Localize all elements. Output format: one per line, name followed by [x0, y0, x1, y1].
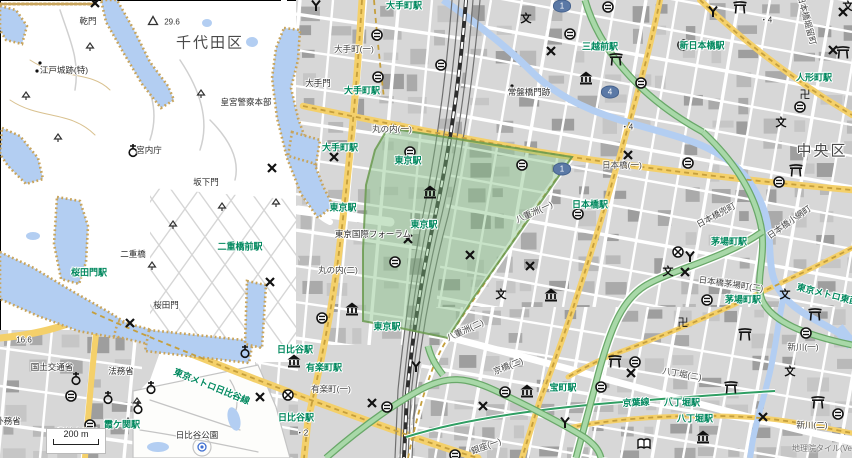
- school-icon: [496, 287, 508, 301]
- subway-station-icon: [678, 40, 688, 50]
- tree-icon: [149, 262, 156, 270]
- site-dot-icon: [510, 84, 513, 87]
- school-icon: [780, 287, 792, 301]
- site-dot-icon: [35, 69, 38, 72]
- subway-station-icon: [630, 357, 640, 367]
- library-icon: [638, 439, 650, 448]
- police-station-icon: [283, 390, 293, 400]
- subway-station-icon: [683, 158, 693, 168]
- government-icon: [129, 144, 137, 156]
- subway-station-icon: [795, 102, 805, 112]
- subway-station-icon: [373, 72, 383, 82]
- subway-station-icon: [801, 328, 811, 338]
- subway-station-icon: [450, 450, 460, 458]
- tree-icon: [87, 43, 94, 51]
- subway-station-icon: [317, 313, 327, 323]
- subway-station-icon: [833, 409, 843, 419]
- police-box-icon: [266, 278, 274, 286]
- subway-station-icon: [405, 147, 415, 157]
- tree-icon: [55, 134, 62, 142]
- subway-station-icon: [390, 257, 400, 267]
- subway-station-icon: [603, 2, 613, 12]
- school-icon: [776, 115, 788, 129]
- temple-icon: [678, 316, 689, 329]
- subway-station-icon: [636, 78, 646, 88]
- scale-bar-line: [53, 439, 99, 445]
- subway-station-icon: [372, 30, 382, 40]
- subway-station-icon: [66, 391, 76, 401]
- tree-icon: [23, 92, 30, 100]
- subway-station-icon: [596, 382, 606, 392]
- subway-station-icon: [382, 402, 392, 412]
- school-icon: [785, 364, 797, 378]
- subway-station-icon: [702, 295, 712, 305]
- map-image: 文 卍: [0, 0, 852, 458]
- scale-label: 200 m: [63, 429, 88, 439]
- scale-bar: 200 m: [46, 428, 106, 454]
- attribution: 地理院タイル(Vector): [792, 443, 852, 454]
- subway-station-icon: [573, 209, 583, 219]
- school-icon: [843, 0, 852, 13]
- site-dot-icon: [38, 61, 41, 64]
- fountain-icon: [198, 443, 206, 451]
- site-dot-icon: [516, 91, 519, 94]
- subway-station-icon: [500, 387, 510, 397]
- triangulation-icon: [149, 17, 158, 25]
- subway-station-icon: [517, 160, 527, 170]
- tree-icon: [273, 199, 280, 207]
- police-box-icon: [268, 164, 276, 172]
- subway-station-icon: [436, 60, 446, 70]
- subway-station-icon: [774, 177, 784, 187]
- school-icon: [663, 264, 675, 278]
- subway-station-icon: [565, 29, 575, 39]
- school-icon: [521, 11, 533, 25]
- temple-icon: [800, 88, 811, 101]
- site-dot-icon: [43, 69, 46, 72]
- map-canvas[interactable]: 文 卍: [0, 0, 852, 458]
- police-station-icon: [673, 247, 683, 257]
